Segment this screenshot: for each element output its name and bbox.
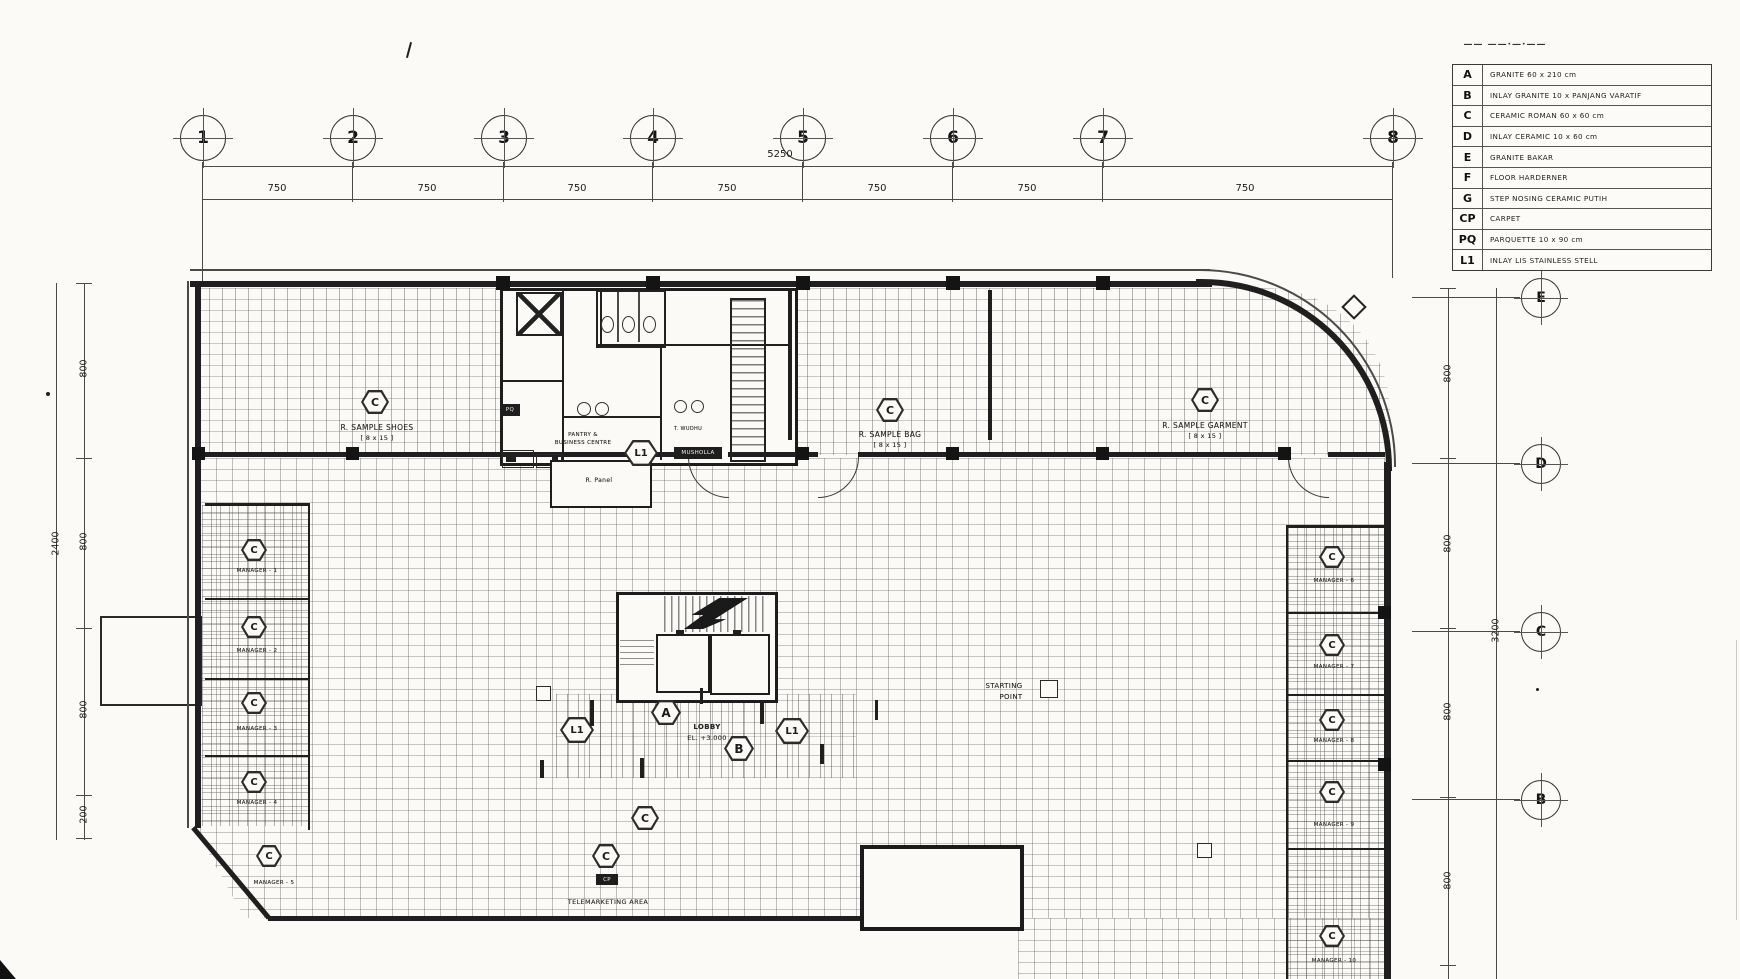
scan-speck [1536, 688, 1539, 691]
c-text: C [371, 396, 379, 409]
grid-number: 4 [647, 128, 659, 148]
grid-bubble-B: B [1521, 780, 1561, 820]
elevator-door-notch [733, 630, 741, 634]
wastafel [595, 402, 609, 416]
dim-750: 750 [1235, 183, 1254, 194]
grid-line [352, 162, 353, 202]
scan-mark-slash [406, 42, 412, 58]
grid-bubble-4: 4 [630, 115, 676, 161]
legend-desc: PARQUETTE 10 x 90 cm [1483, 230, 1711, 250]
grid-bubble-1: 1 [180, 115, 226, 161]
c-text: C [250, 777, 257, 788]
dimension-tick [76, 283, 92, 284]
scan-speck [46, 392, 50, 396]
c-text: C [265, 851, 272, 862]
column [1096, 447, 1109, 460]
legend-code: E [1453, 147, 1483, 167]
dimension-line-segments [202, 199, 1392, 200]
wall-core [562, 416, 662, 418]
manager-right-label: MANAGER - 10 [1312, 958, 1357, 964]
wall-manager-divider [205, 598, 310, 600]
wall-corridor [200, 452, 688, 457]
legend-row: CCERAMIC ROMAN 60 x 60 cm [1453, 106, 1711, 127]
dimension-tick [1440, 288, 1456, 289]
c-text: C [886, 404, 894, 417]
dim-750: 750 [267, 183, 286, 194]
legend-row: L1INLAY LIS STAINLESS STELL [1453, 250, 1711, 270]
dim-total-left: 2400 [51, 522, 62, 566]
room-label-shoes: R. SAMPLE SHOES [340, 423, 413, 432]
column [646, 276, 660, 290]
b-text: B [734, 742, 743, 756]
starting-point-label2: POINT [999, 693, 1022, 701]
dim-800: 800 [1443, 352, 1454, 396]
wall-partition [788, 290, 792, 440]
grid-bubble-8: 8 [1370, 115, 1416, 161]
room-label-pantry: PANTRY & [568, 432, 598, 438]
grid-letter: D [1535, 456, 1547, 472]
legend-code: L1 [1453, 250, 1483, 270]
wall-outer-line [190, 269, 1210, 271]
toilet-fixture [643, 316, 656, 333]
grid-line [952, 162, 953, 202]
column [946, 276, 960, 290]
grid-line [1392, 162, 1393, 278]
grid-number: 5 [797, 128, 809, 148]
wall-manager-divider [1286, 760, 1385, 762]
dim-800: 800 [79, 520, 90, 564]
dimension-tick [1440, 628, 1456, 629]
inlay-bar [640, 758, 644, 778]
grid-number: 7 [1097, 128, 1109, 148]
wall-manager-side [308, 503, 310, 830]
room-label-lobby: LOBBY [693, 723, 720, 731]
floor-marker-square [1040, 680, 1058, 698]
scan-edge-line [1736, 640, 1737, 920]
room-label-bag: R. SAMPLE BAG [859, 430, 922, 439]
legend-code: G [1453, 189, 1483, 209]
legend-desc: CARPET [1483, 209, 1711, 229]
floor-plan-sheet: 1 2 3 4 5 6 7 8 5250 750 750 750 750 750… [0, 0, 1740, 979]
wall-right [1384, 462, 1391, 979]
legend-desc: INLAY LIS STAINLESS STELL [1483, 250, 1711, 270]
elevator-door-notch [676, 630, 684, 634]
legend-code: B [1453, 86, 1483, 106]
legend-desc: GRANITE BAKAR [1483, 147, 1711, 167]
legend-row: EGRANITE BAKAR [1453, 147, 1711, 168]
grid-letter: C [1536, 624, 1546, 640]
c-text: C [1201, 394, 1209, 407]
legend-code: C [1453, 106, 1483, 126]
legend-row: DINLAY CERAMIC 10 x 60 cm [1453, 127, 1711, 148]
grid-letter: B [1536, 792, 1547, 808]
wall-manager-divider [1286, 848, 1385, 850]
legend-title-marks: —— ——·—·—— [1464, 40, 1547, 50]
dim-800: 800 [1443, 522, 1454, 566]
grid-letter: E [1536, 290, 1546, 306]
grid-number: 1 [197, 128, 209, 148]
wall-corridor [1328, 452, 1385, 457]
room-label-pantry2: BUSINESS CENTRE [555, 440, 612, 446]
room-label-lobby-el: EL. +3.000 [687, 734, 726, 742]
column [1378, 606, 1391, 619]
legend-desc: INLAY CERAMIC 10 x 60 cm [1483, 127, 1711, 147]
grid-number: 8 [1387, 128, 1399, 148]
legend-code: CP [1453, 209, 1483, 229]
inlay-bar [875, 700, 878, 720]
toilet-fixture [622, 316, 635, 333]
c-text: C [1328, 640, 1335, 651]
manager-right-label: MANAGER - 6 [1314, 578, 1355, 584]
inlay-bar [760, 700, 764, 724]
floor-marker-square [536, 686, 551, 701]
manager-left-label: MANAGER - 4 [237, 800, 278, 806]
wall-manager-side [1286, 525, 1288, 979]
corner-diamond-marker [1341, 294, 1366, 319]
legend-code: PQ [1453, 230, 1483, 250]
wall-core [562, 290, 564, 460]
wastafel [674, 400, 687, 413]
dim-800: 800 [79, 347, 90, 391]
legend-row: AGRANITE 60 x 210 cm [1453, 65, 1711, 86]
legend-desc: GRANITE 60 x 210 cm [1483, 65, 1711, 85]
legend-row: BINLAY GRANITE 10 x PANJANG VARATIF [1453, 86, 1711, 107]
grid-tick-line [1412, 297, 1520, 298]
dim-750: 750 [417, 183, 436, 194]
room-label-twudhu: T. WUDHU [674, 426, 702, 432]
elevator-car [656, 634, 710, 693]
finish-tag-pq: PQ [500, 404, 520, 416]
floor-void [860, 845, 1024, 931]
room-label-rpanel: R. Panel [586, 477, 613, 484]
wall-corridor [858, 452, 1288, 457]
room-size-shoes: [ 8 x 15 ] [360, 434, 393, 442]
inlay-bar [700, 688, 703, 704]
pantry-counter-item [506, 454, 516, 462]
wastafel [577, 402, 591, 416]
c-text: C [250, 698, 257, 709]
legend-row: CPCARPET [1453, 209, 1711, 230]
grid-tick-line [1412, 631, 1520, 632]
toilet-fixture [601, 316, 614, 333]
inlay-bar [590, 700, 594, 726]
manager-right-label: MANAGER - 8 [1314, 738, 1355, 744]
room-size-garment: [ 8 x 15 ] [1188, 432, 1221, 440]
grid-line [802, 162, 803, 202]
legend-desc: FLOOR HARDERNER [1483, 168, 1711, 188]
wall-manager-left-top [205, 503, 310, 506]
legend-row: GSTEP NOSING CERAMIC PUTIH [1453, 189, 1711, 210]
musholla-text: MUSHOLLA [681, 450, 714, 456]
inlay-bar [820, 744, 824, 764]
grid-line [1102, 162, 1103, 202]
column [496, 276, 510, 290]
stair-landing-hatch [620, 640, 654, 670]
grid-tick-line [1412, 463, 1520, 464]
floor-tiles-manager-right [1288, 527, 1385, 979]
stall-divider [638, 292, 640, 342]
dim-total-right: 3200 [1491, 609, 1502, 653]
c-text: C [250, 622, 257, 633]
room-label-garment: R. SAMPLE GARMENT [1162, 421, 1248, 430]
dimension-tick [1440, 797, 1456, 798]
grid-bubble-3: 3 [481, 115, 527, 161]
dimension-tick [76, 458, 92, 459]
l1-text: L1 [634, 448, 647, 459]
legend-code: F [1453, 168, 1483, 188]
l1-text: L1 [570, 725, 583, 736]
column [346, 447, 359, 460]
dim-total-top: 5250 [767, 149, 792, 160]
finish-tag-cp: CP [596, 874, 618, 885]
room-label-telemarketing: TELEMARKETING AREA [568, 898, 648, 906]
room-size-bag: [ 8 x 15 ] [873, 441, 906, 449]
legend-desc: STEP NOSING CERAMIC PUTIH [1483, 189, 1711, 209]
column [1278, 447, 1291, 460]
wall-left [195, 281, 201, 828]
legend-desc: CERAMIC ROMAN 60 x 60 cm [1483, 106, 1711, 126]
grid-bubble-D: D [1521, 444, 1561, 484]
legend-table: AGRANITE 60 x 210 cm BINLAY GRANITE 10 x… [1452, 64, 1712, 271]
c-text: C [641, 812, 649, 825]
legend-code: A [1453, 65, 1483, 85]
manager-left-label: MANAGER - 2 [237, 648, 278, 654]
grid-line [202, 162, 203, 283]
shaft-x-box [516, 292, 562, 336]
grid-number: 2 [347, 128, 359, 148]
room-label-musholla: MUSHOLLA [674, 447, 722, 459]
grid-bubble-E: E [1521, 278, 1561, 318]
a-text: A [661, 706, 670, 720]
manager-right-label: MANAGER - 9 [1314, 822, 1355, 828]
dim-200: 200 [79, 793, 90, 837]
dim-800: 800 [1443, 690, 1454, 734]
r-panel-room [550, 460, 652, 508]
wall-manager-right-top [1286, 525, 1385, 528]
grid-bubble-6: 6 [930, 115, 976, 161]
grid-line [652, 162, 653, 202]
legend-row: FFLOOR HARDERNER [1453, 168, 1711, 189]
c-text: C [1328, 552, 1335, 563]
c-text: C [1328, 787, 1335, 798]
grid-number: 3 [498, 128, 510, 148]
wall-manager-divider [1286, 694, 1385, 696]
wall-manager-divider [1286, 612, 1385, 614]
floor-marker-square [1197, 843, 1212, 858]
column [796, 447, 809, 460]
stall-divider [617, 292, 619, 342]
c-text: C [1328, 715, 1335, 726]
grid-number: 6 [947, 128, 959, 148]
legend-desc: INLAY GRANITE 10 x PANJANG VARATIF [1483, 86, 1711, 106]
starting-point-label: STARTING [985, 682, 1022, 690]
manager-left-label: MANAGER - 1 [237, 568, 278, 574]
column [192, 447, 205, 460]
c-text: C [250, 545, 257, 556]
dim-750: 750 [867, 183, 886, 194]
grid-bubble-C: C [1521, 612, 1561, 652]
column [1096, 276, 1110, 290]
c-text: C [602, 850, 610, 863]
column [1378, 758, 1391, 771]
elevator-car [710, 634, 770, 695]
dimension-tick [76, 838, 92, 839]
inlay-bar [540, 760, 544, 778]
dimension-tick [1440, 458, 1456, 459]
wall-top [190, 281, 1212, 287]
wall-manager-divider [205, 678, 310, 680]
dim-750: 750 [1017, 183, 1036, 194]
manager-right-label: MANAGER - 7 [1314, 664, 1355, 670]
grid-bubble-2: 2 [330, 115, 376, 161]
pq-text: PQ [506, 407, 514, 413]
manager-left-label: MANAGER - 5 [254, 880, 295, 886]
wall-core [500, 380, 562, 382]
dim-800: 800 [79, 688, 90, 732]
escalator [730, 298, 766, 462]
wall-outer-line [187, 281, 189, 828]
legend-code: D [1453, 127, 1483, 147]
wall-partition [988, 290, 992, 440]
grid-bubble-7: 7 [1080, 115, 1126, 161]
grid-line [503, 162, 504, 202]
column [946, 447, 959, 460]
wall-manager-divider [205, 755, 310, 757]
wall-bottom [268, 916, 862, 921]
column [796, 276, 810, 290]
wall-core [660, 346, 662, 460]
manager-left-label: MANAGER - 3 [237, 726, 278, 732]
dim-800: 800 [1443, 859, 1454, 903]
c-text: C [1328, 931, 1335, 942]
grid-tick-line [1412, 799, 1520, 800]
legend-row: PQPARQUETTE 10 x 90 cm [1453, 230, 1711, 251]
dim-750: 750 [567, 183, 586, 194]
wastafel [691, 400, 704, 413]
dimension-tick [76, 628, 92, 629]
dim-750: 750 [717, 183, 736, 194]
dimension-line-total [202, 166, 1392, 167]
cp-text: CP [603, 877, 611, 883]
l1-text: L1 [785, 726, 798, 737]
dimension-tick [1440, 965, 1456, 966]
